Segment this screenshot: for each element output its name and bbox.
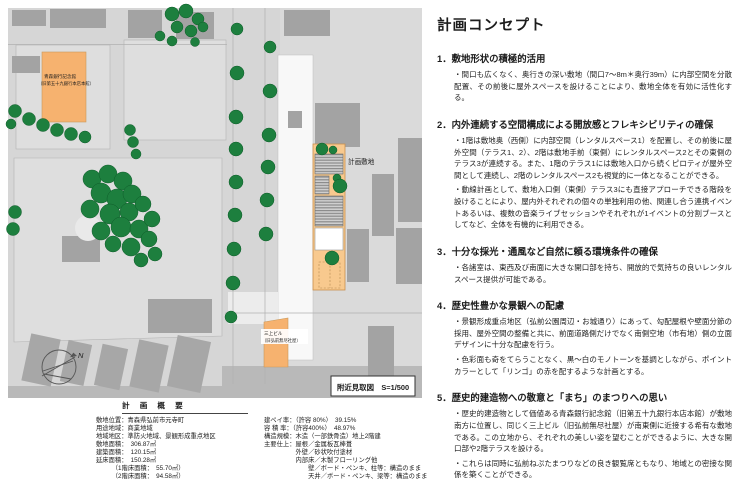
bank-label-line1: 青森銀行記念館 (44, 73, 77, 80)
section-5-heading: 5．歴史的建造物への敬意と「まち」のまつりへの思い (437, 390, 734, 404)
finish-roof: 主要仕上：屋根／金属板瓦棒葺 (264, 441, 430, 449)
bank-memorial-building: 青森銀行記念館 （旧第五十九銀行本店本館） (38, 52, 94, 122)
concept-panel: 計画コンセプト 1．敷地形状の積極的活用 ・間口も広くなく、奥行きの深い敷地（間… (437, 10, 734, 484)
floor2-area: （2階床面積： 94.58㎡） (96, 473, 264, 481)
section-5-paragraph-2: ・これらは同時に弘前ねぷたまつりなどの良き観覧席ともなり、地域との密接な関係を築… (454, 458, 732, 481)
concept-section-2: 2．内外連続する空間構成による開放感とフレキシビリティの確保 ・1階は敷地奥（西… (437, 117, 734, 231)
finish-interior-floor: 内部床／木製フローリング他 (264, 457, 430, 465)
map-caption: 附近見取図 S=1/500 (337, 383, 409, 392)
finish-exterior-wall: 外壁／砂状吹付塗材 (264, 449, 430, 457)
concept-section-3: 3．十分な採光・通風など自然に頼る環境条件の確保 ・各諸室は、東西及び南面に大き… (437, 244, 734, 285)
floor1-area: （1階床面積： 55.70㎡） (96, 465, 264, 473)
plan-overview: 計 画 概 要 敷地位置：青森県弘前市元寺町 用途地域：商業地域 地域地区：準防… (96, 400, 430, 481)
plan-overview-title: 計 画 概 要 (122, 400, 248, 414)
total-floor-area: 延床面積： 150.28㎡ (96, 457, 264, 465)
coverage-ratio: 建ペイ率：（許容 80%） 39.15% (264, 417, 430, 425)
section-4-paragraph-1: ・景観形成重点地区（弘前公園周辺・お城通り）にあって、勾配屋根や壁面分節の採用、… (454, 316, 732, 351)
district: 地域地区：準防火地域、景観形成重点地区 (96, 433, 264, 441)
finish-wall: 壁／ボード・ペンキ、柱等：構造のまま (264, 465, 430, 473)
concept-section-5: 5．歴史的建造物への敬意と「まち」のまつりへの思い ・歴史的建造物として価値ある… (437, 390, 734, 481)
structure-scale: 構造規模：木造（一部鉄骨造）地上2階建 (264, 433, 430, 441)
building-area: 建築面積： 120.15㎡ (96, 449, 264, 457)
page-title: 計画コンセプト (437, 14, 734, 35)
zoning-use: 用途地域：商業地域 (96, 425, 264, 433)
plan-overview-left-column: 敷地位置：青森県弘前市元寺町 用途地域：商業地域 地域地区：準防火地域、景観形成… (96, 417, 264, 481)
section-1-heading: 1．敷地形状の積極的活用 (437, 51, 734, 65)
floor-area-ratio: 容 積 率：（許容400%） 48.97% (264, 425, 430, 433)
concept-section-4: 4．歴史性豊かな景観への配慮 ・景観形成重点地区（弘前公園周辺・お城通り）にあっ… (437, 298, 734, 377)
north-label: N (78, 351, 84, 360)
mikami-label-line2: （旧弘前無尽社屋） (262, 337, 301, 344)
site-map: 青森銀行記念館 （旧第五十九銀行本店本館） 計画敷地 三上ビル （旧弘前無尽社屋… (0, 0, 430, 402)
section-5-paragraph-1: ・歴史的建造物として価値ある青森銀行記念館（旧第五十九銀行本店本館）が敷地南方に… (454, 408, 732, 455)
map-caption-box: 附近見取図 S=1/500 (331, 376, 415, 396)
section-3-paragraph: ・各諸室は、東西及び南面に大きな開口部を持ち、開放的で気持ちの良いレンタルスペー… (454, 262, 732, 285)
finish-ceiling: 天井／ボード・ペンキ、梁等：構造のまま (264, 473, 430, 481)
mikami-label-line1: 三上ビル (264, 330, 283, 336)
concept-section-1: 1．敷地形状の積極的活用 ・間口も広くなく、奥行きの深い敷地（間口7～8m＊奥行… (437, 51, 734, 104)
site-location: 敷地位置：青森県弘前市元寺町 (96, 417, 264, 425)
section-1-paragraph: ・間口も広くなく、奥行きの深い敷地（間口7～8m＊奥行39m）に内部空間を分散配… (454, 69, 732, 104)
plan-overview-right-column: 建ペイ率：（許容 80%） 39.15% 容 積 率：（許容400%） 48.9… (264, 417, 430, 481)
bank-label-line2: （旧第五十九銀行本店本館） (38, 80, 94, 87)
section-2-paragraph-1: ・1階は敷地奥（西側）に内部空間（レンタルスペース1）を配置し、その前後に屋外空… (454, 135, 732, 182)
section-2-paragraph-2: ・動線計画として、敷地入口側（東側）テラス3にも直接アプローチできる階段を設ける… (454, 184, 732, 231)
section-4-paragraph-2: ・色彩面も奇をてらうことなく、黒～白のモノトーンを基調としながら、ポイントカラー… (454, 354, 732, 377)
section-2-heading: 2．内外連続する空間構成による開放感とフレキシビリティの確保 (437, 117, 734, 131)
site-label: 計画敷地 (348, 157, 375, 166)
section-3-heading: 3．十分な採光・通風など自然に頼る環境条件の確保 (437, 244, 734, 258)
site-area: 敷地面積： 306.87㎡ (96, 441, 264, 449)
section-4-heading: 4．歴史性豊かな景観への配慮 (437, 298, 734, 312)
